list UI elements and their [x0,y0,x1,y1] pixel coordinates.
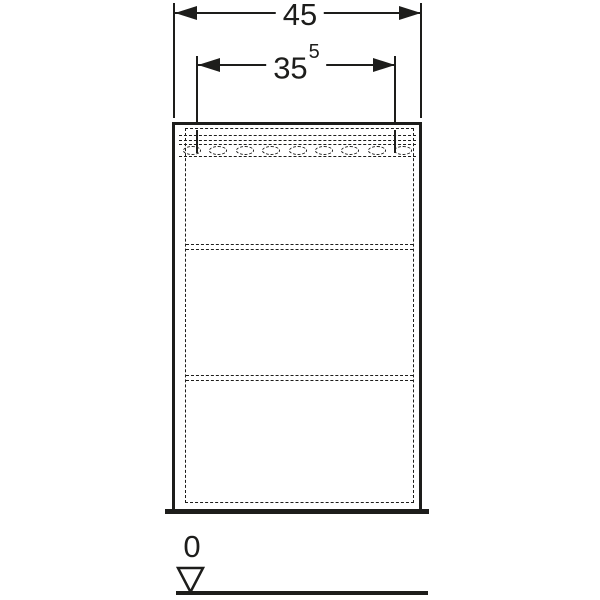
perforation-oval [341,146,359,155]
overall-width-extension-line-right [420,3,422,118]
perforation-oval [368,146,386,155]
technical-drawing-canvas: 45 355 0 [0,0,600,600]
perforation-oval [394,146,412,155]
overall-width-label: 45 [276,0,324,30]
datum-zero-label: 0 [183,531,200,562]
arrow-right-icon [399,6,421,20]
datum-zero-value: 0 [183,529,200,564]
perforation-oval [289,146,307,155]
floor-line [176,591,428,595]
datum-triangle-icon [176,566,205,594]
overall-width-value: 45 [283,0,317,32]
perforation-oval [209,146,227,155]
shelf-lower [186,375,413,381]
perforation-oval [315,146,333,155]
perforation-oval [236,146,254,155]
mounting-rail-perforation-band [179,144,416,157]
inner-width-superscript: 5 [309,41,320,63]
perforation-oval [183,146,201,155]
arrow-left-icon [175,6,197,20]
arrow-left-icon [198,58,220,72]
inner-width-extension-tail-left [196,130,198,153]
inner-width-label: 355 [266,51,326,83]
overall-width-extension-line-left [173,3,175,118]
perforation-oval [262,146,280,155]
mounting-rail-line-lower [179,140,416,141]
inner-width-extension-tail-right [394,130,396,153]
cabinet-bottom-plinth [165,509,429,514]
inner-width-value: 35 [273,50,307,85]
cabinet-inner-dashed-outline [185,128,414,503]
mounting-rail-line-upper [179,135,416,136]
shelf-upper [186,244,413,250]
arrow-right-icon [373,58,395,72]
